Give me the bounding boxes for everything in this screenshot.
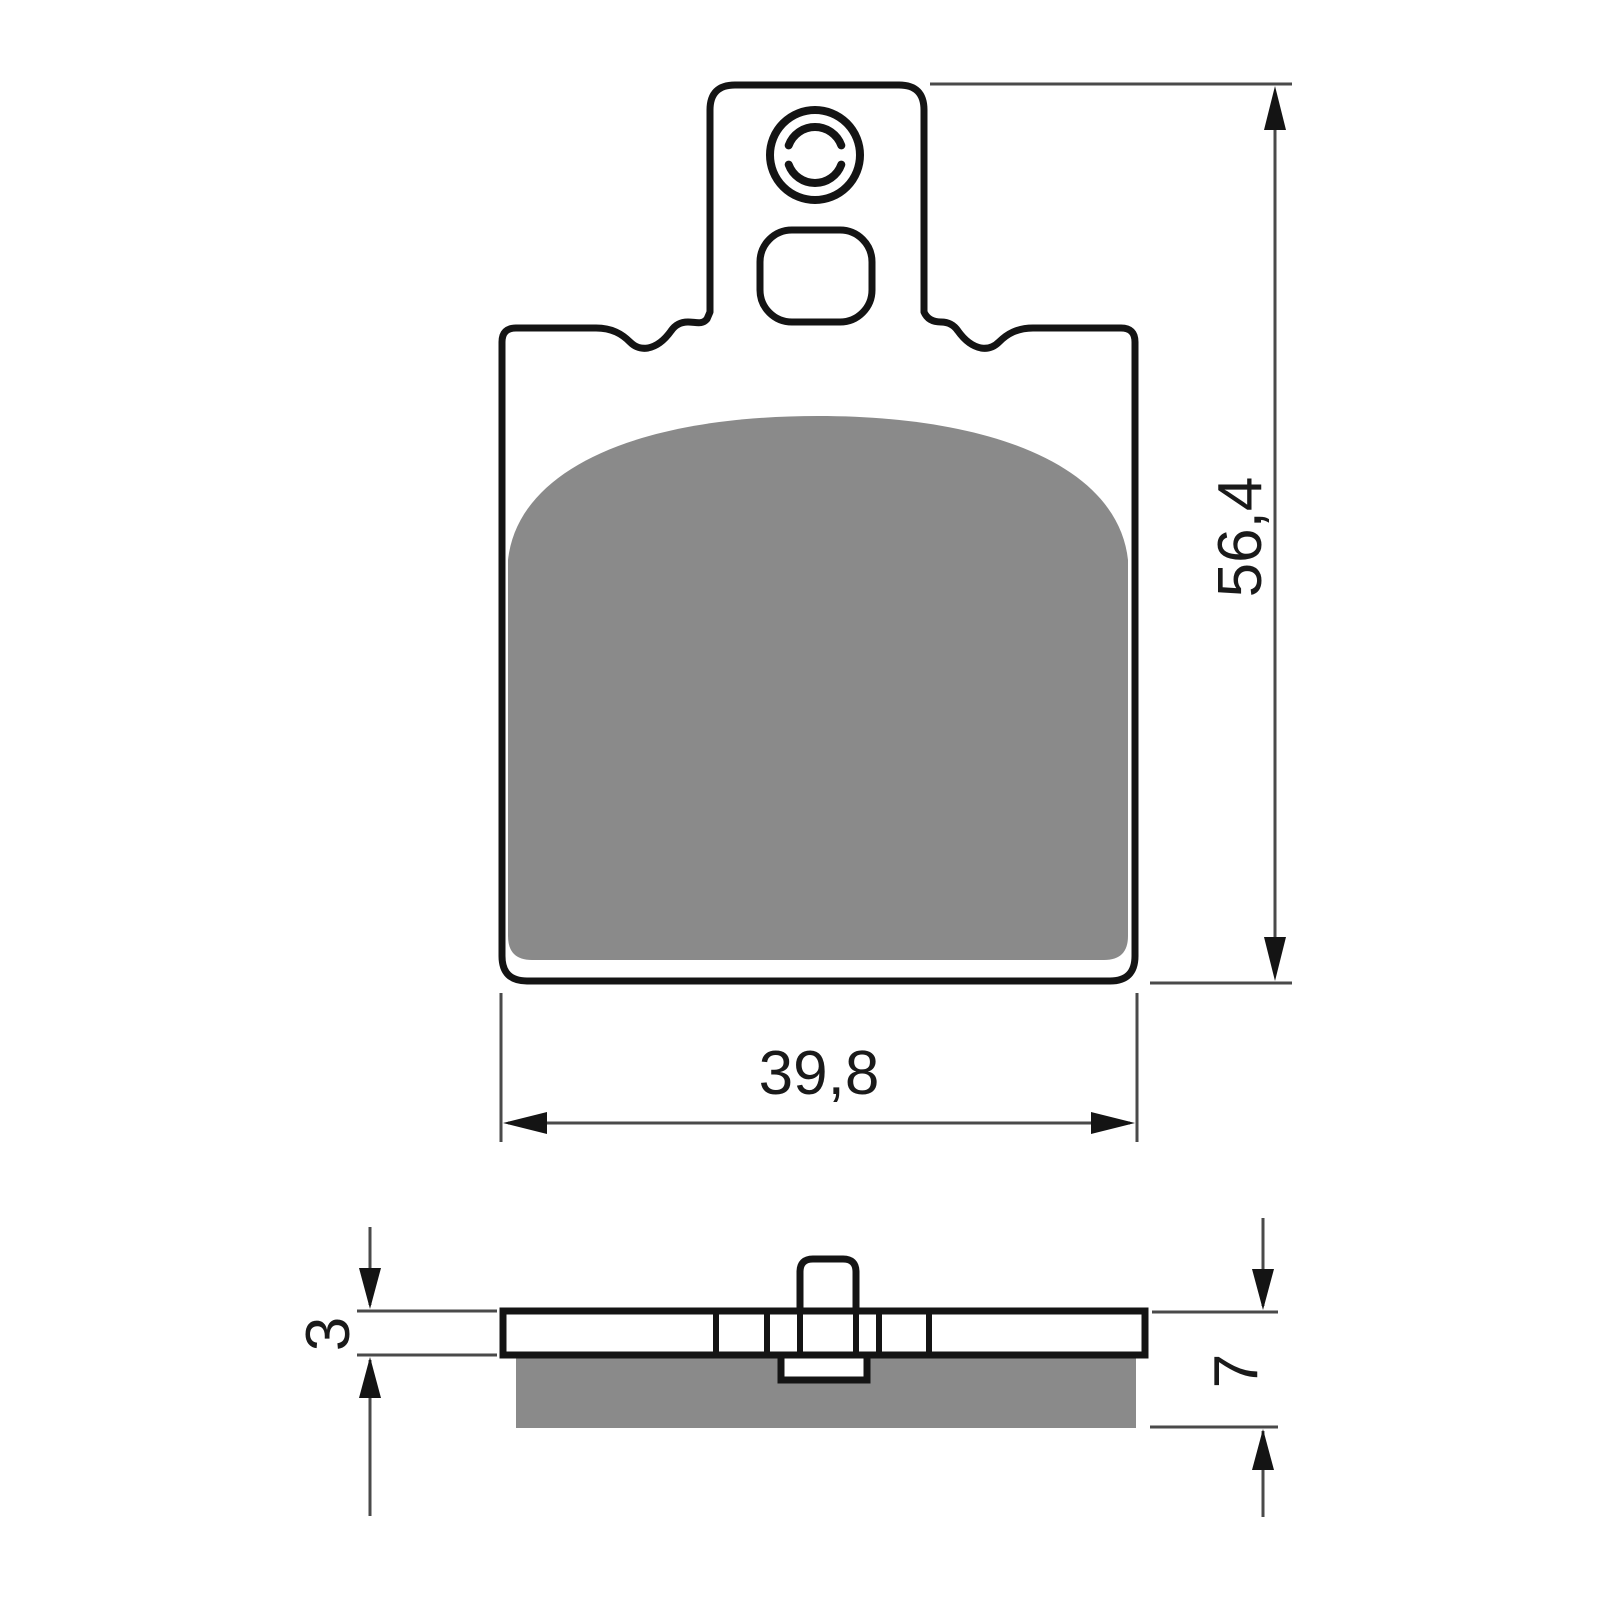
side-view xyxy=(503,1259,1145,1428)
arrowhead-right xyxy=(1091,1112,1135,1134)
pad-height-label: 56,4 xyxy=(1206,477,1275,598)
brake-pad-technical-drawing: 56,4 39,8 3 7 xyxy=(0,0,1600,1600)
side-tab xyxy=(800,1259,856,1312)
total-thickness-label: 7 xyxy=(1202,1354,1271,1388)
retaining-hole xyxy=(760,230,872,322)
backplate-thickness-label: 3 xyxy=(294,1317,363,1351)
dimension-backplate-thickness: 3 xyxy=(294,1227,497,1516)
friction-material-front xyxy=(508,416,1128,960)
pad-width-label: 39,8 xyxy=(759,1039,880,1108)
front-view xyxy=(502,85,1135,981)
dimension-pad-width: 39,8 xyxy=(501,993,1137,1142)
backplate xyxy=(503,1311,1145,1355)
arrowhead-up xyxy=(359,1357,381,1398)
dimension-total-thickness: 7 xyxy=(1150,1218,1278,1517)
arrowhead-down xyxy=(1252,1269,1274,1310)
drawing-canvas: 56,4 39,8 3 7 xyxy=(0,0,1600,1600)
arrowhead-down xyxy=(1264,937,1286,981)
arrowhead-down xyxy=(359,1268,381,1309)
arrowhead-left xyxy=(503,1112,547,1134)
arrowhead-up xyxy=(1252,1429,1274,1470)
arrowhead-up xyxy=(1264,86,1286,130)
